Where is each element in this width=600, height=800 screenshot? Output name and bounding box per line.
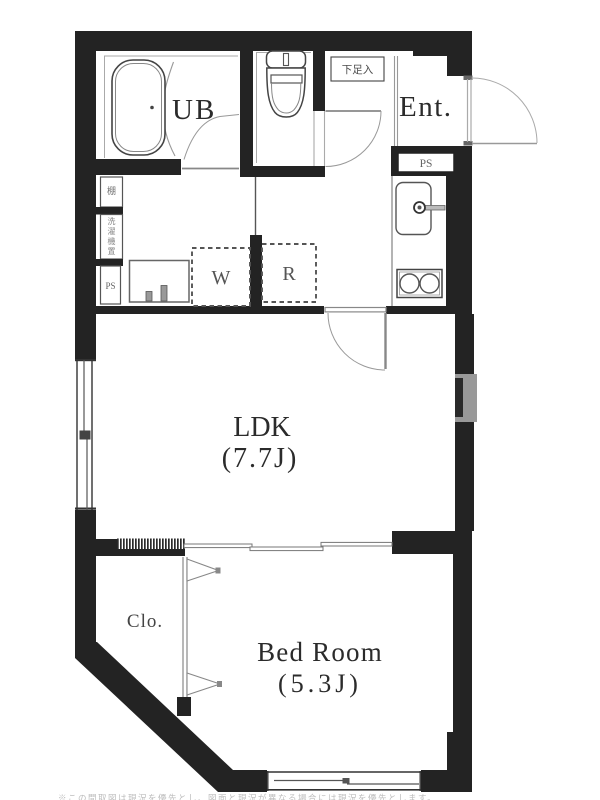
svg-text:Clo.: Clo. [127, 611, 163, 632]
svg-text:洗: 洗 [108, 216, 116, 226]
svg-text:UB: UB [172, 94, 216, 126]
svg-text:R: R [282, 263, 296, 285]
svg-text:Ent.: Ent. [399, 91, 453, 123]
svg-text:PS: PS [420, 158, 433, 170]
svg-text:(5.3J): (5.3J) [278, 669, 362, 698]
svg-text:下足入: 下足入 [342, 64, 374, 76]
svg-text:PS: PS [105, 281, 115, 291]
svg-text:LDK: LDK [233, 412, 291, 443]
svg-text:棚: 棚 [107, 185, 116, 196]
svg-text:Bed Room: Bed Room [257, 637, 383, 667]
svg-text:W: W [212, 267, 231, 289]
svg-text:濯: 濯 [108, 226, 116, 236]
svg-text:※この間取図は現況を優先とし、図面と現況が異なる場合には現況: ※この間取図は現況を優先とし、図面と現況が異なる場合には現況を優先とします。 [58, 793, 437, 800]
svg-text:(7.7J): (7.7J) [222, 443, 299, 474]
svg-text:機: 機 [108, 236, 116, 246]
svg-text:置: 置 [108, 247, 116, 256]
